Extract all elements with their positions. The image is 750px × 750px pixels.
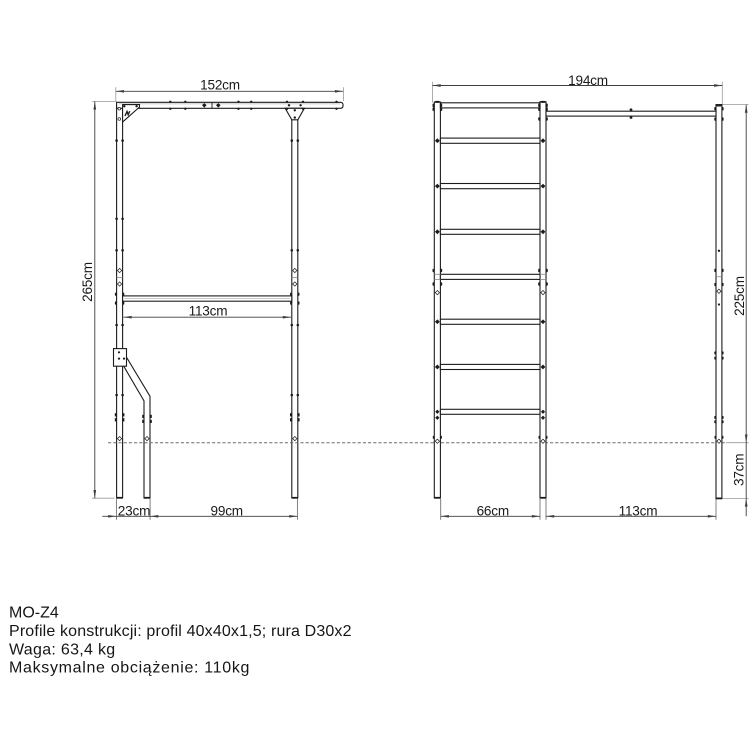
svg-text:Waga: 63,4 kg: Waga: 63,4 kg	[9, 641, 115, 658]
svg-text:152cm: 152cm	[200, 77, 240, 92]
svg-text:99cm: 99cm	[210, 503, 242, 518]
svg-text:23cm: 23cm	[118, 503, 150, 518]
svg-text:37cm: 37cm	[732, 454, 747, 486]
svg-text:Profile konstrukcji: profil 40: Profile konstrukcji: profil 40x40x1,5; r…	[9, 623, 352, 640]
svg-text:66cm: 66cm	[477, 503, 509, 518]
svg-text:Maksymalne obciążenie: 110kg: Maksymalne obciążenie: 110kg	[9, 660, 250, 677]
svg-text:225cm: 225cm	[732, 276, 747, 316]
svg-text:194cm: 194cm	[568, 73, 608, 88]
svg-text:113cm: 113cm	[189, 303, 228, 318]
svg-text:113cm: 113cm	[619, 503, 658, 518]
svg-text:MO-Z4: MO-Z4	[9, 605, 59, 622]
svg-text:265cm: 265cm	[80, 262, 95, 302]
